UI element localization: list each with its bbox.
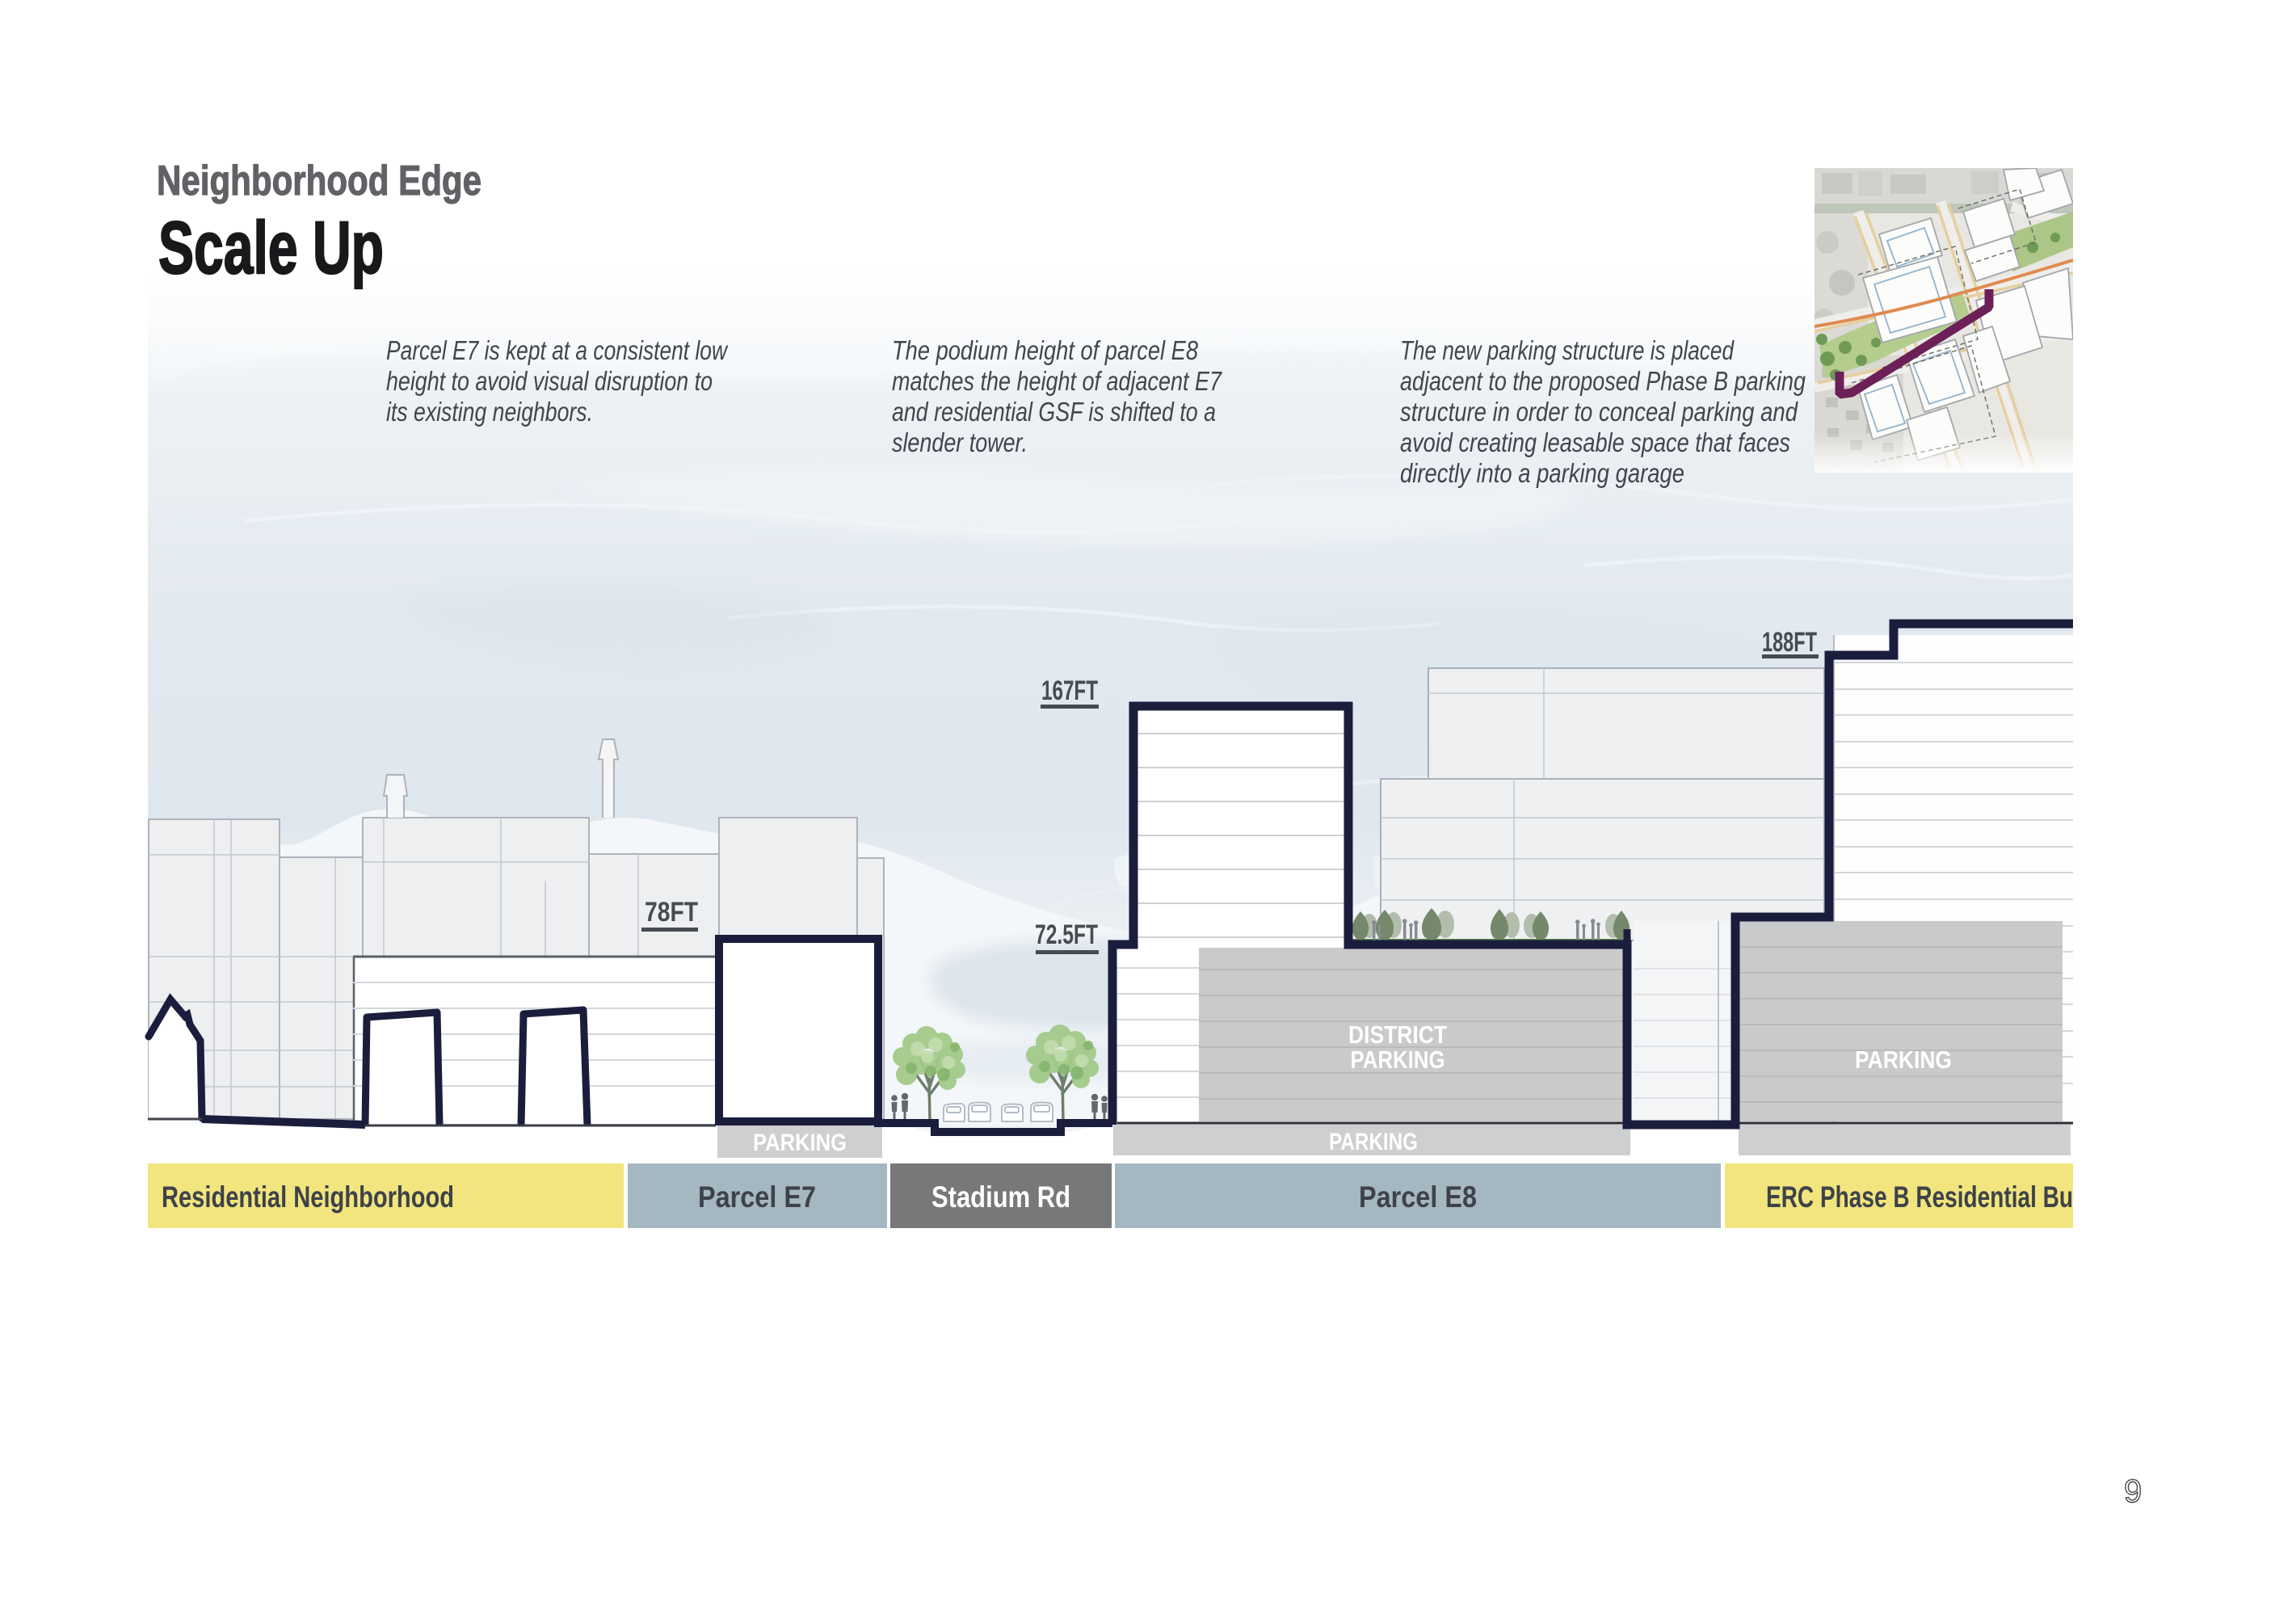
svg-text:adjacent to the proposed Phase: adjacent to the proposed Phase B parking [1400,366,1806,396]
svg-text:PARKING: PARKING [1351,1046,1445,1074]
svg-text:Residential Neighborhood: Residential Neighborhood [162,1180,454,1214]
svg-text:slender tower.: slender tower. [892,427,1028,457]
svg-text:directly into a parking garage: directly into a parking garage [1400,458,1684,488]
svg-text:PARKING: PARKING [1329,1129,1418,1155]
svg-text:DISTRICT: DISTRICT [1348,1020,1447,1049]
svg-text:Parcel E7 is kept at a consist: Parcel E7 is kept at a consistent low [386,335,729,365]
svg-text:height to avoid visual disrupt: height to avoid visual disruption to [386,366,713,396]
svg-text:72.5FT: 72.5FT [1035,919,1098,950]
svg-text:188FT: 188FT [1762,627,1817,658]
svg-text:ERC Phase B Residential Bu: ERC Phase B Residential Bu [1766,1180,2073,1214]
svg-text:Neighborhood Edge: Neighborhood Edge [157,158,481,204]
svg-text:matches the height of adjacent: matches the height of adjacent E7 [892,366,1222,396]
svg-text:Scale Up: Scale Up [158,207,384,289]
svg-text:Parcel E7: Parcel E7 [698,1180,816,1214]
svg-text:its existing neighbors.: its existing neighbors. [386,397,593,427]
svg-text:avoid creating leasable space: avoid creating leasable space that faces [1400,427,1790,457]
svg-text:78FT: 78FT [645,897,698,928]
svg-text:and residential GSF is shifted: and residential GSF is shifted to a [892,397,1216,427]
svg-text:Parcel E8: Parcel E8 [1359,1180,1477,1214]
svg-text:Stadium Rd: Stadium Rd [931,1180,1070,1214]
svg-text:The new parking structure is p: The new parking structure is placed [1400,335,1735,365]
svg-text:structure in order to conceal: structure in order to conceal parking an… [1400,397,1798,427]
svg-text:9: 9 [2124,1474,2142,1509]
svg-text:167FT: 167FT [1041,675,1098,706]
svg-text:PARKING: PARKING [753,1130,847,1156]
svg-text:The podium height of parcel E8: The podium height of parcel E8 [892,335,1199,365]
svg-text:PARKING: PARKING [1855,1046,1952,1074]
